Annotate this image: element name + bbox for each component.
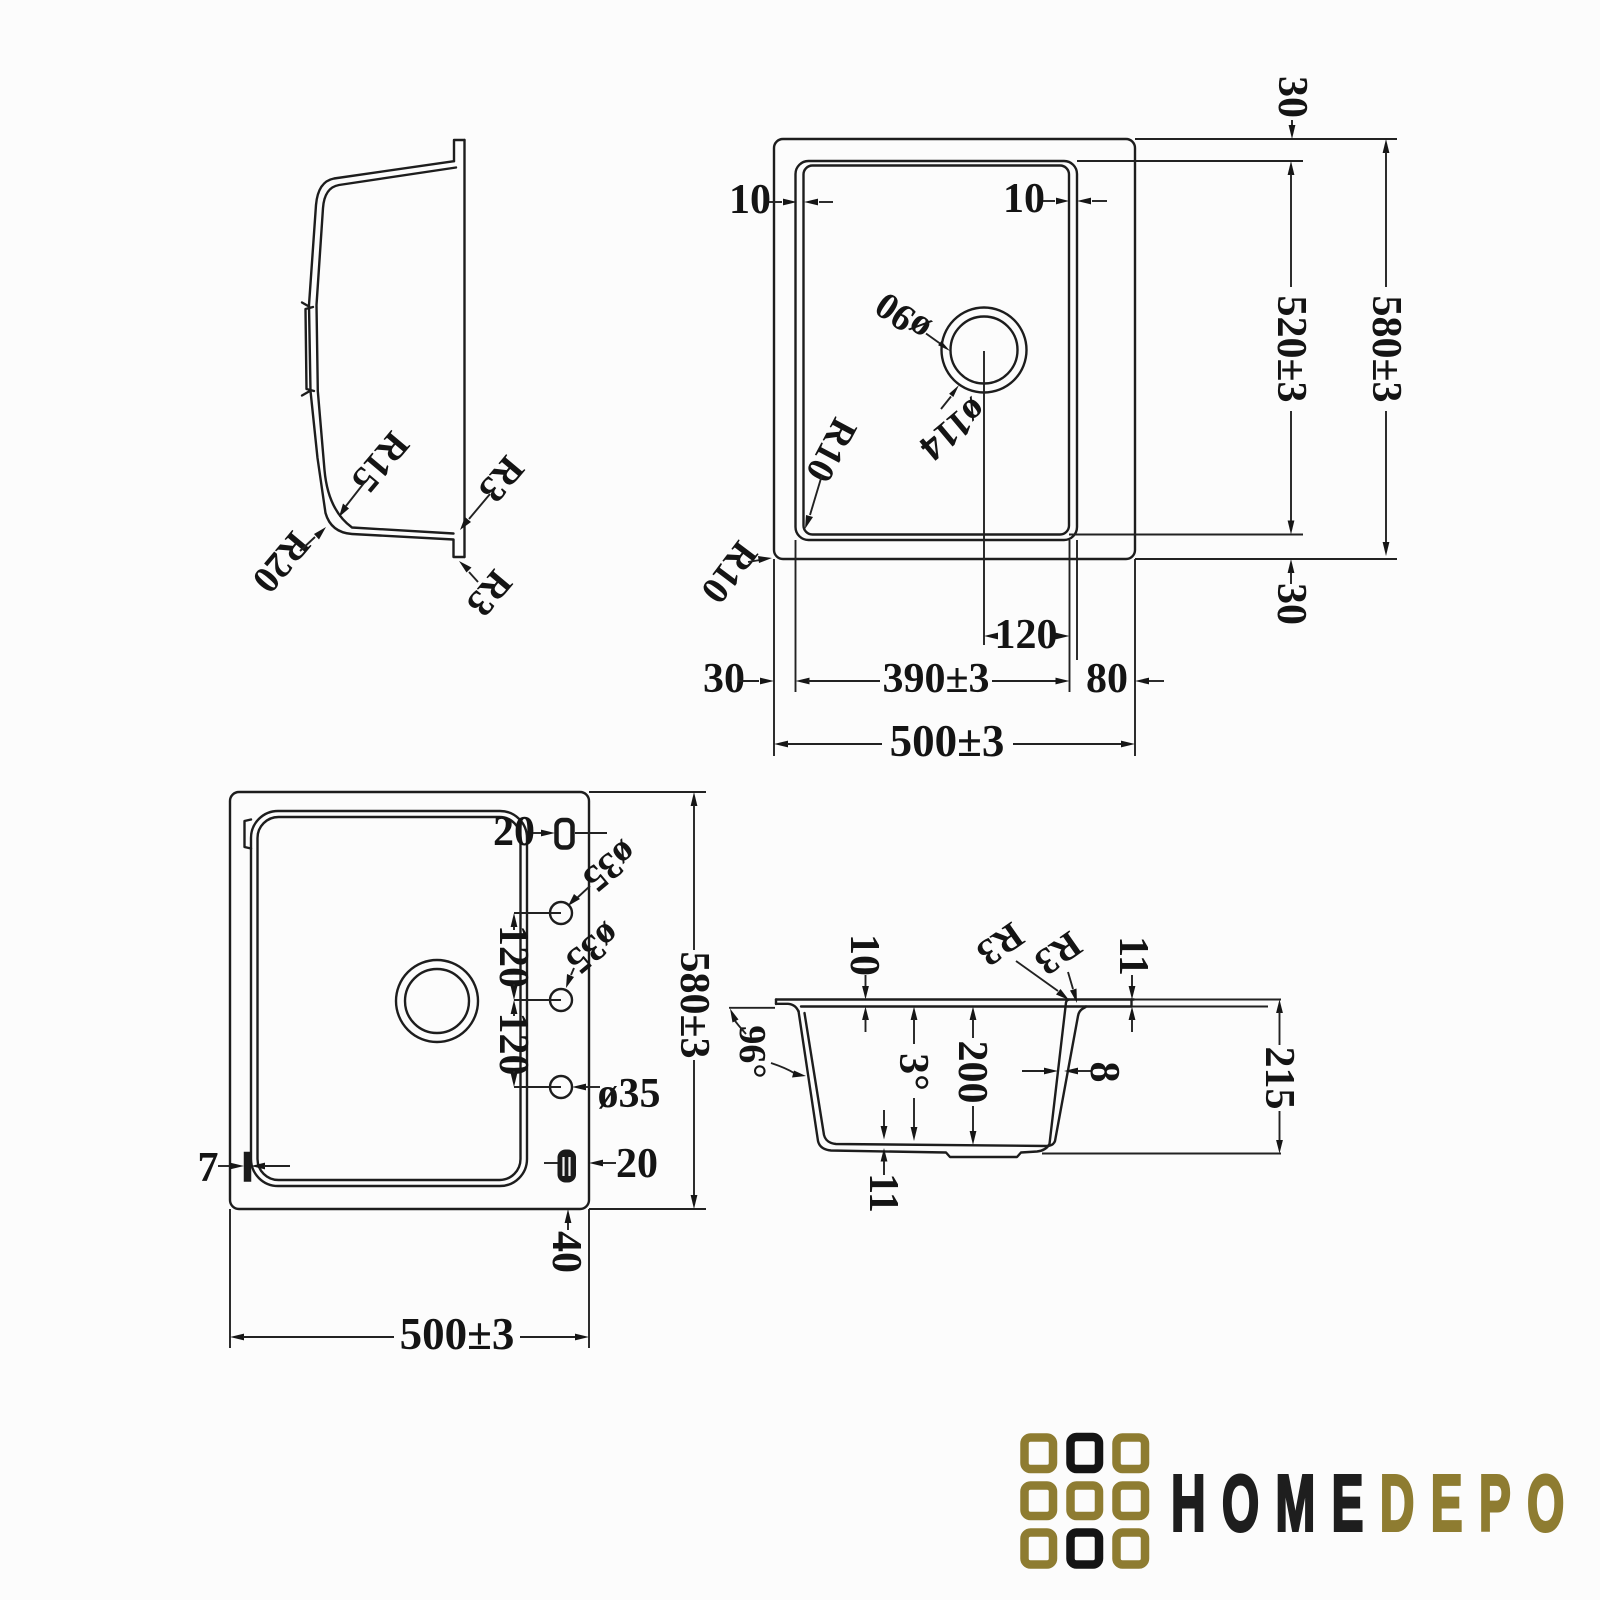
svg-text:200: 200 (949, 1041, 995, 1104)
svg-text:3°: 3° (890, 1053, 936, 1091)
svg-text:30: 30 (1269, 76, 1315, 118)
svg-text:500±3: 500±3 (400, 1309, 515, 1359)
svg-text:20: 20 (616, 1141, 658, 1187)
svg-text:HOMEDEPO: HOMEDEPO (1171, 1458, 1581, 1548)
svg-text:500±3: 500±3 (890, 716, 1005, 766)
svg-text:11: 11 (1110, 936, 1156, 976)
svg-text:11: 11 (860, 1173, 906, 1213)
svg-text:520±3: 520±3 (1268, 295, 1314, 402)
svg-text:580±3: 580±3 (1363, 295, 1409, 402)
svg-text:80: 80 (1086, 656, 1128, 702)
svg-text:7: 7 (198, 1145, 219, 1191)
svg-text:120: 120 (490, 1013, 536, 1076)
svg-text:580±3: 580±3 (671, 951, 717, 1058)
svg-text:10: 10 (841, 934, 887, 976)
svg-text:120: 120 (995, 612, 1058, 658)
svg-text:96°: 96° (731, 1025, 773, 1078)
svg-text:10: 10 (1003, 176, 1045, 222)
svg-text:390±3: 390±3 (882, 656, 989, 702)
svg-text:10: 10 (729, 177, 771, 223)
svg-text:ø35: ø35 (598, 1071, 661, 1117)
svg-text:40: 40 (543, 1231, 589, 1273)
svg-text:30: 30 (1268, 583, 1314, 625)
svg-text:8: 8 (1081, 1062, 1127, 1083)
svg-text:120: 120 (490, 925, 536, 988)
svg-text:30: 30 (703, 656, 745, 702)
svg-text:215: 215 (1256, 1047, 1302, 1110)
svg-text:20: 20 (493, 809, 535, 855)
